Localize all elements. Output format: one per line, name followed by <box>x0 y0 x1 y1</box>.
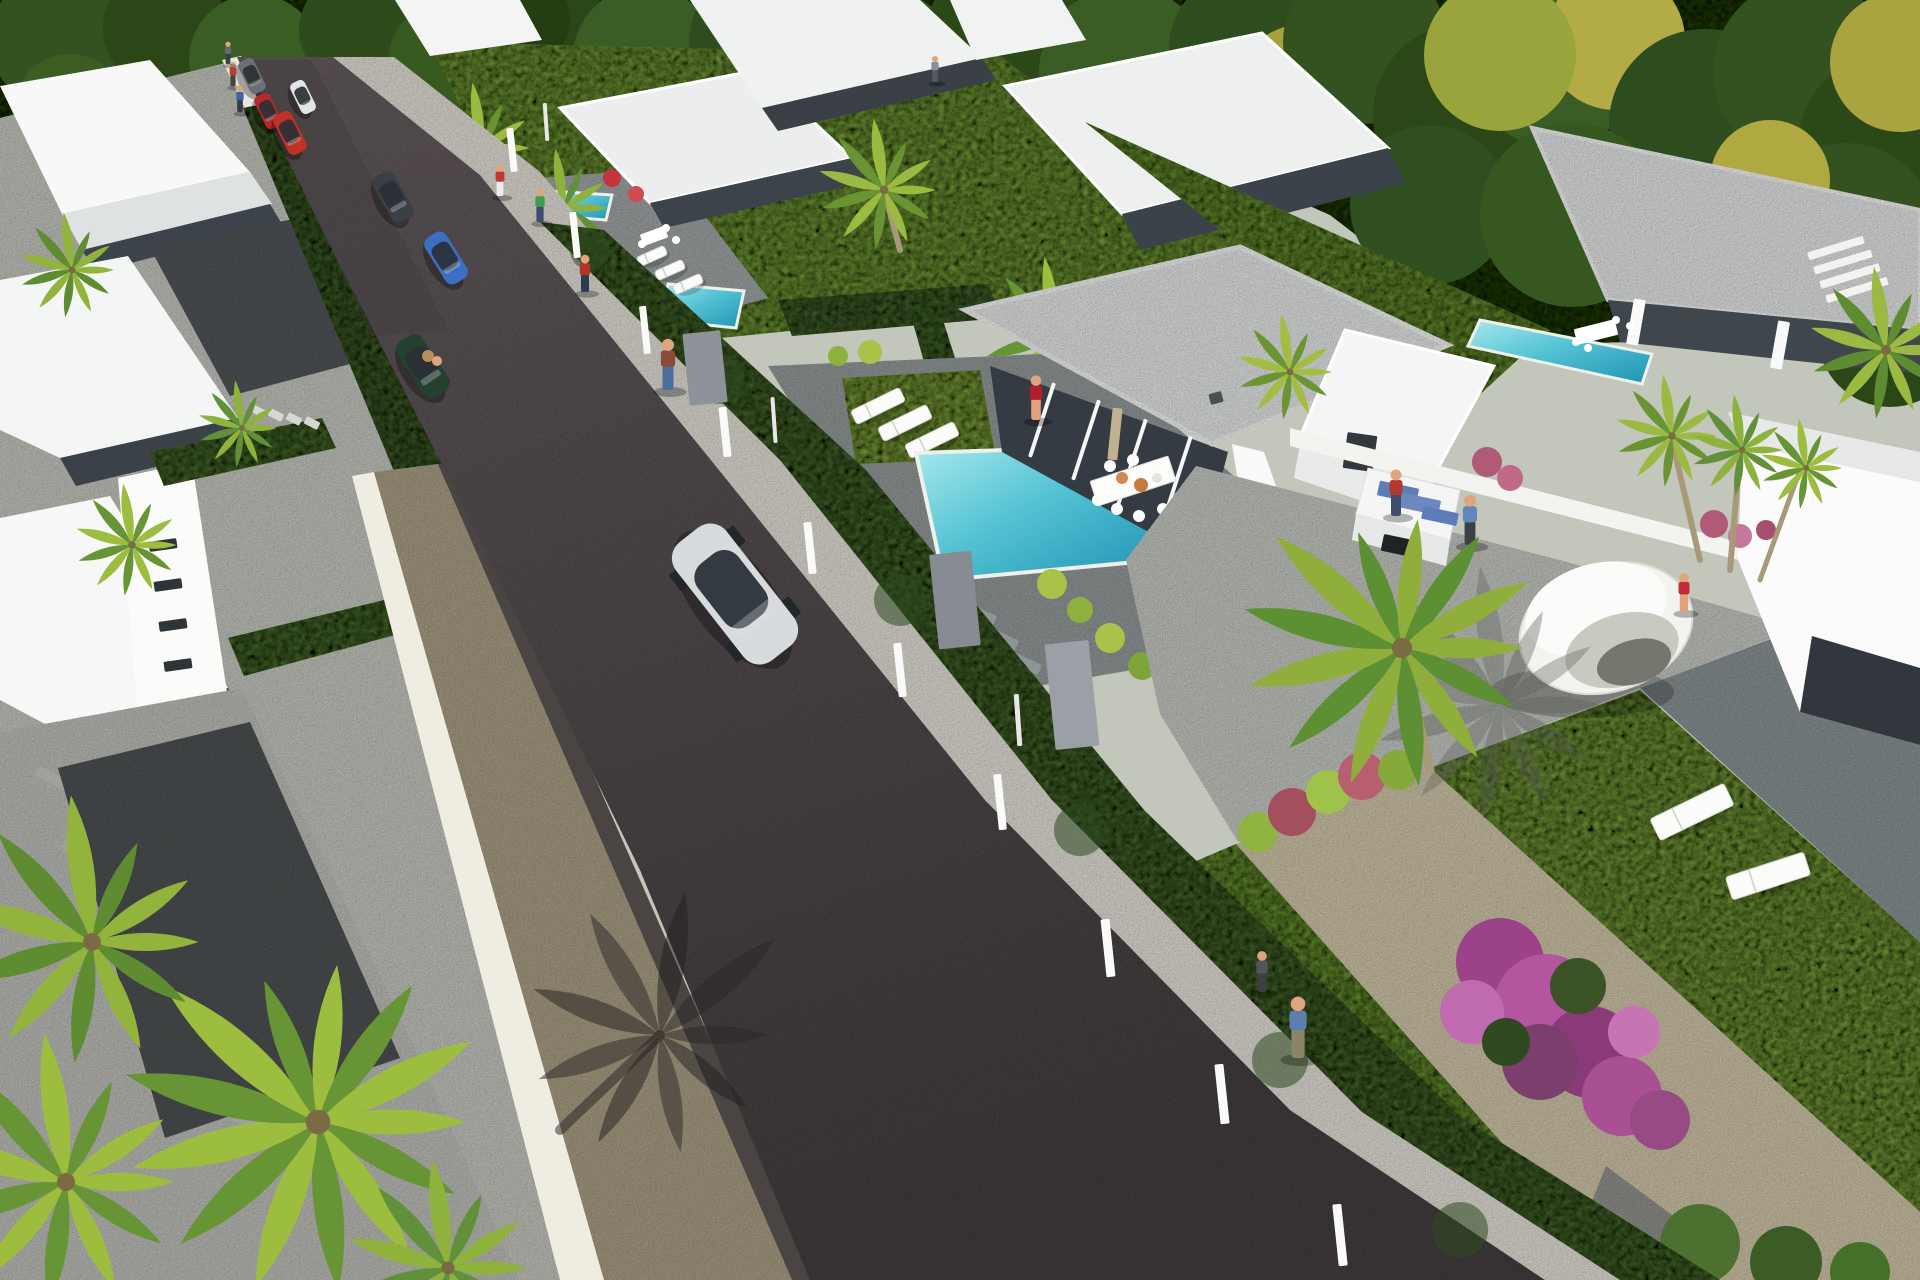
aerial-villa-development-render <box>0 0 1920 1280</box>
pedestrian <box>535 196 544 207</box>
pedestrian <box>226 53 231 64</box>
red-flowers <box>603 169 621 187</box>
pedestrian-blue-jacket <box>1291 1028 1304 1058</box>
shrubs <box>1067 597 1093 623</box>
woman-swimsuit <box>1680 593 1688 612</box>
bougainvillea-bush <box>1550 958 1606 1014</box>
pedestrian <box>932 69 938 82</box>
palm-tree <box>57 1173 75 1191</box>
table-plates <box>1134 478 1148 492</box>
pedestrian <box>661 350 675 367</box>
pink-flowers <box>1497 465 1523 491</box>
pedestrian-blue-jacket <box>1289 1010 1306 1030</box>
palm-tree <box>441 1261 454 1274</box>
palm-tree <box>1287 369 1294 376</box>
man-blue-shirt <box>1463 506 1477 522</box>
hedge-shadow <box>874 574 926 626</box>
garden-chairs <box>1584 344 1592 352</box>
hedge-shadow <box>1432 1202 1488 1258</box>
garden-chairs <box>1612 316 1620 324</box>
pedestrian <box>663 365 674 390</box>
pedestrian <box>496 172 505 182</box>
dining-chairs <box>1133 510 1145 522</box>
pedestrian <box>929 81 946 86</box>
dining-chairs <box>1111 503 1123 515</box>
pedestrian <box>536 205 543 222</box>
pedestrian-small <box>1258 972 1267 992</box>
pedestrian <box>236 92 243 100</box>
pedestrian-small <box>1257 951 1267 961</box>
woman-swimsuit <box>1679 573 1688 582</box>
table-plates <box>1116 472 1128 484</box>
pedestrian <box>580 263 590 275</box>
pedestrian <box>230 74 235 86</box>
gate-panel <box>682 330 727 406</box>
dining-chairs <box>1104 460 1116 472</box>
pedestrian <box>931 62 938 70</box>
scene-canvas <box>0 0 1920 1280</box>
man-red-shirt <box>1391 493 1401 516</box>
pedestrian <box>230 67 237 75</box>
woman-red-swimsuit <box>1031 375 1042 386</box>
palm-tree <box>128 541 135 548</box>
palm-tree <box>239 425 245 431</box>
palm-tree <box>1668 432 1675 439</box>
palm-tree <box>1881 345 1891 355</box>
garden-chairs <box>672 236 680 244</box>
pedestrian <box>662 339 674 351</box>
pedestrian <box>497 180 504 196</box>
pedestrian <box>536 189 544 197</box>
pedestrian <box>225 42 230 47</box>
garden-chairs <box>1626 322 1634 330</box>
man-red-shirt <box>1390 480 1403 495</box>
palm-tree <box>880 186 889 195</box>
woman-red-swimsuit <box>1031 398 1041 420</box>
pedestrian <box>237 86 243 92</box>
man-blue-shirt <box>1464 495 1476 507</box>
pedestrian <box>234 111 251 116</box>
bougainvillea-bush <box>1630 1090 1690 1150</box>
pedestrian <box>581 255 590 264</box>
palm-tree <box>69 267 76 274</box>
pedestrian <box>581 274 589 292</box>
palm-tree <box>83 933 101 951</box>
garden-chairs <box>1572 338 1580 346</box>
garden-chairs <box>662 224 670 232</box>
bougainvillea-bush <box>1608 1006 1660 1058</box>
palm-tree <box>1803 465 1809 471</box>
pedestrian <box>237 99 243 112</box>
garden-chairs <box>638 240 646 248</box>
convertible-occupants <box>432 356 442 366</box>
man-red-shirt <box>1391 470 1402 481</box>
big-palm <box>1392 638 1412 658</box>
palm-tree <box>1739 447 1746 454</box>
shrubs <box>1037 569 1067 599</box>
pedestrian <box>223 64 237 68</box>
pedestrian <box>496 164 503 171</box>
pedestrian <box>225 47 231 54</box>
dining-chairs <box>1150 460 1162 472</box>
pink-flowers <box>1472 447 1502 477</box>
bougainvillea-bush <box>1482 1018 1530 1066</box>
shrubs <box>828 346 848 366</box>
shrubs <box>1095 623 1125 653</box>
table-plates <box>1152 473 1162 483</box>
woman-red-swimsuit <box>1030 385 1042 399</box>
woman-swimsuit <box>1679 582 1690 595</box>
pedestrian-blue-jacket <box>1291 997 1306 1012</box>
dining-chairs <box>1092 494 1104 506</box>
hedge-shadow <box>1054 804 1106 856</box>
big-palm <box>306 1110 331 1135</box>
dining-chairs <box>1127 454 1139 466</box>
pedestrian-small <box>1256 960 1267 973</box>
pedestrian <box>932 56 938 62</box>
red-flowers <box>628 186 644 202</box>
shrubs <box>858 340 882 364</box>
pink-flowers <box>1700 510 1728 538</box>
